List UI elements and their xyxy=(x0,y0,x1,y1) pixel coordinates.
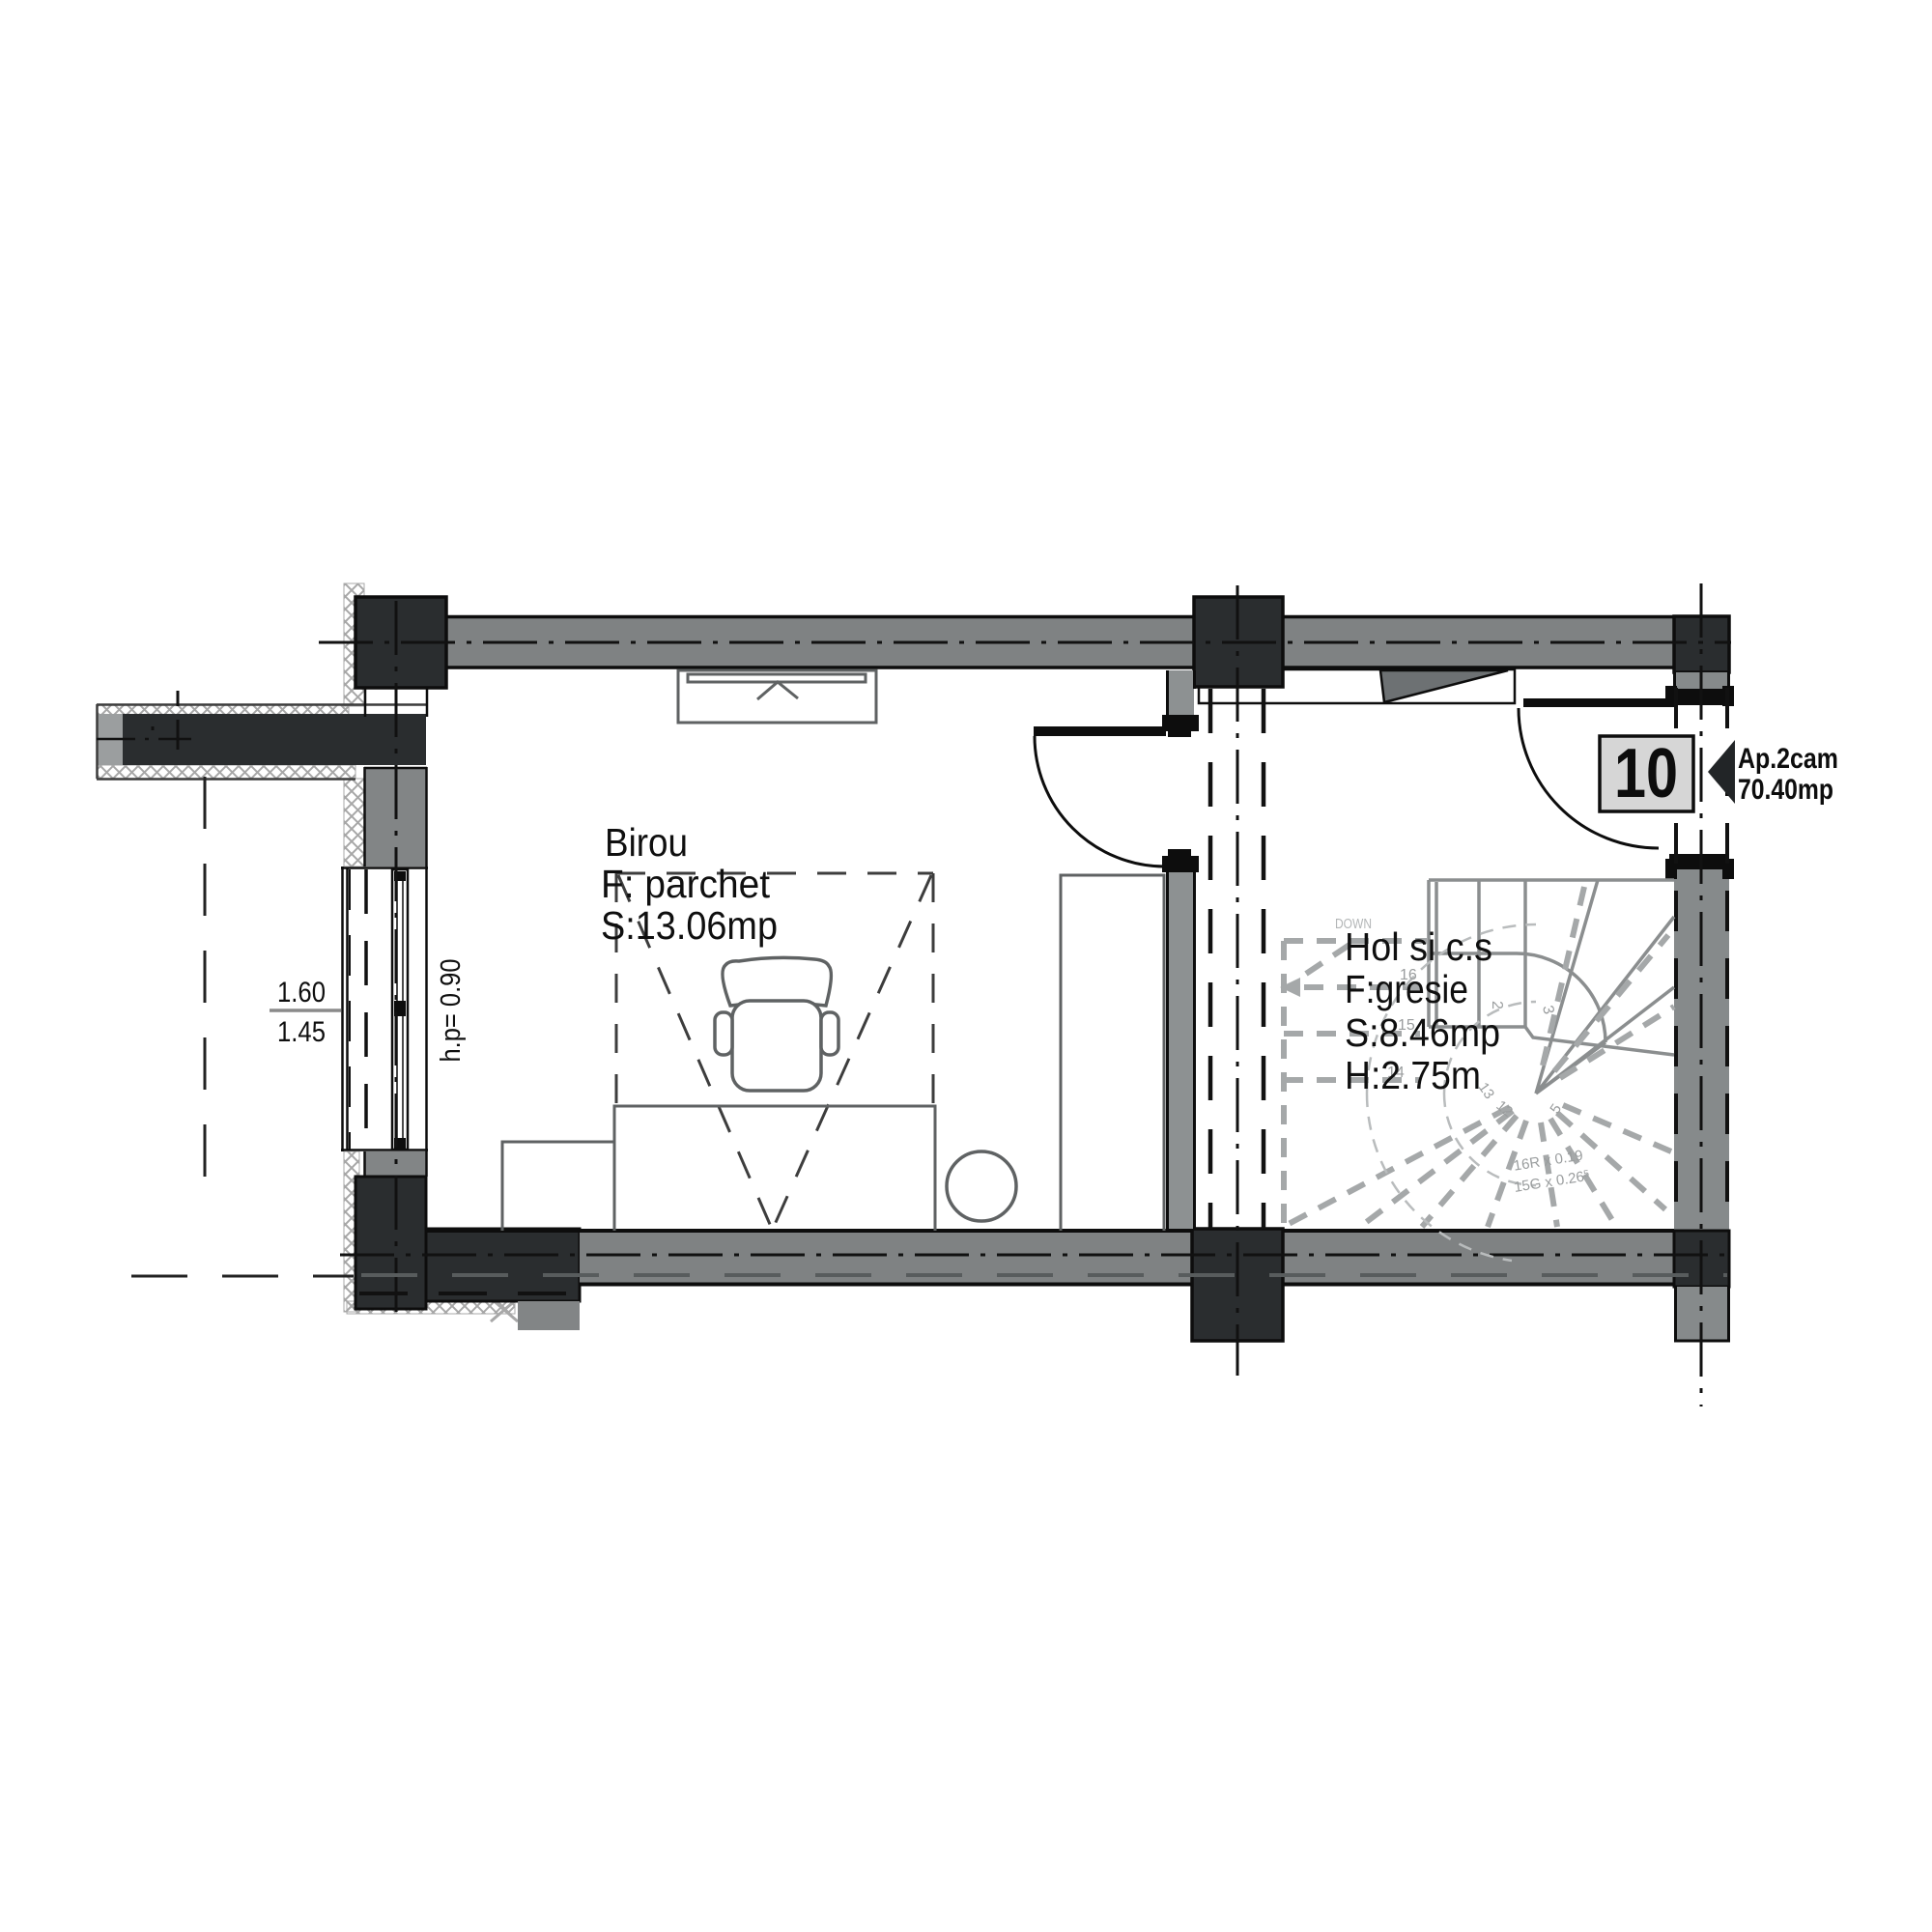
svg-text:2: 2 xyxy=(1489,1001,1505,1009)
svg-text:F: parchet: F: parchet xyxy=(601,862,771,906)
svg-text:1.45: 1.45 xyxy=(277,1016,326,1048)
svg-text:10: 10 xyxy=(1614,735,1678,812)
svg-text:S:13.06mp: S:13.06mp xyxy=(601,903,778,948)
svg-text:Birou: Birou xyxy=(605,820,688,865)
svg-text:Hol si c.s: Hol si c.s xyxy=(1345,924,1492,969)
svg-text:1.60: 1.60 xyxy=(277,977,326,1009)
svg-text:70.40mp: 70.40mp xyxy=(1738,774,1833,806)
svg-text:Ap.2cam: Ap.2cam xyxy=(1738,743,1838,775)
svg-text:F:gresie: F:gresie xyxy=(1345,967,1468,1011)
svg-text:h.p= 0.90: h.p= 0.90 xyxy=(436,959,467,1063)
svg-text:H:2.75m: H:2.75m xyxy=(1345,1053,1481,1097)
svg-text:S:8.46mp: S:8.46mp xyxy=(1345,1010,1500,1055)
